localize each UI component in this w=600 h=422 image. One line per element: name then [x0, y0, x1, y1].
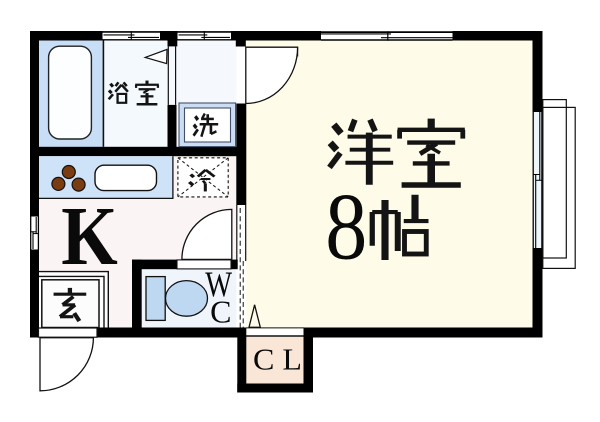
svg-text:C: C: [210, 293, 231, 329]
svg-text:K: K: [61, 190, 118, 283]
svg-text:8: 8: [325, 174, 367, 280]
svg-text:C L: C L: [253, 343, 302, 377]
